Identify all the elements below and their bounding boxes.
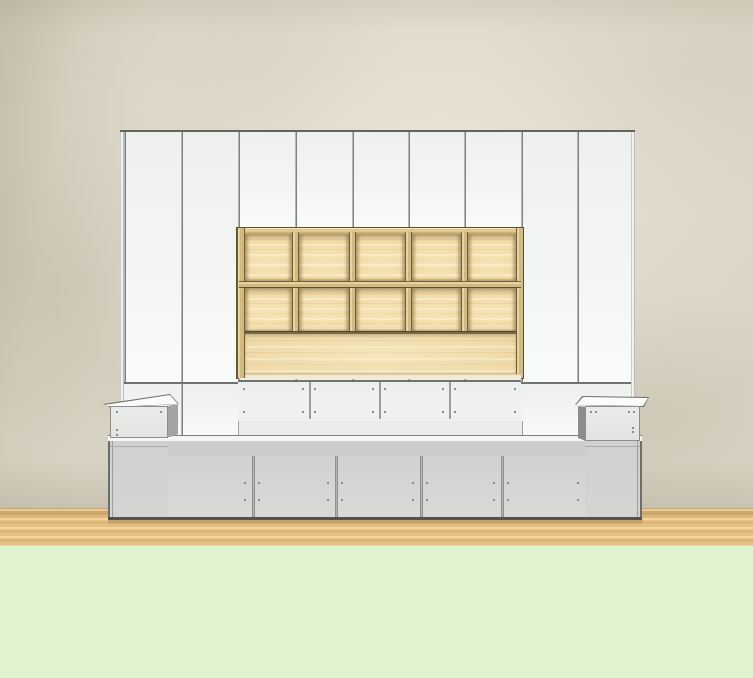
base-door[interactable] bbox=[335, 456, 420, 517]
furniture-render-scene bbox=[0, 0, 753, 678]
drawer-screw-dot bbox=[314, 411, 316, 413]
shelf-compartment[interactable] bbox=[468, 288, 516, 331]
door-handle-dot bbox=[507, 482, 509, 484]
door-handle-dot bbox=[327, 482, 329, 484]
door-handle-dot bbox=[341, 499, 343, 501]
shelf-bottom-strip bbox=[239, 374, 521, 379]
box-screw-dot bbox=[633, 411, 635, 413]
base-door[interactable] bbox=[168, 456, 252, 517]
left-box-right-side bbox=[168, 403, 178, 437]
base-door-seam bbox=[501, 456, 504, 517]
shelf-compartment[interactable] bbox=[356, 288, 405, 331]
box-screw-dot bbox=[595, 411, 597, 413]
base-door[interactable] bbox=[501, 456, 585, 517]
drawer-seam bbox=[309, 382, 311, 419]
door-handle-dot bbox=[412, 499, 414, 501]
wardrobe-upper-door[interactable] bbox=[238, 132, 295, 230]
drawer-screw-dot bbox=[243, 411, 245, 413]
drawer-screw-dot bbox=[514, 388, 516, 390]
door-handle-dot bbox=[493, 499, 495, 501]
box-screw-dot bbox=[628, 411, 630, 413]
drawer-screw-dot bbox=[442, 411, 444, 413]
shelf-compartment[interactable] bbox=[299, 234, 349, 281]
door-handle-dot bbox=[244, 482, 246, 484]
base-door[interactable] bbox=[420, 456, 501, 517]
drawer-front[interactable] bbox=[309, 382, 379, 419]
base-left-edge-line bbox=[112, 441, 113, 517]
base-right-edge-line bbox=[637, 441, 638, 517]
shelf-compartment[interactable] bbox=[245, 288, 292, 331]
door-handle-dot bbox=[327, 499, 329, 501]
door-handle-dot bbox=[341, 482, 343, 484]
box-screw-dot bbox=[116, 429, 118, 431]
left-box-front[interactable] bbox=[110, 406, 168, 438]
base-door-seam bbox=[335, 456, 338, 517]
wardrobe-left-edge bbox=[120, 132, 124, 437]
drawer-front[interactable] bbox=[379, 382, 449, 419]
door-handle-dot bbox=[493, 482, 495, 484]
drawer-screw-dot bbox=[384, 388, 386, 390]
shelf-divider-horizontal bbox=[239, 281, 521, 288]
base-top-rail bbox=[168, 441, 585, 457]
door-handle-dot bbox=[426, 499, 428, 501]
box-screw-dot bbox=[116, 434, 118, 436]
drawer-block[interactable] bbox=[238, 380, 521, 419]
wardrobe-right-edge bbox=[631, 132, 635, 437]
panel-seam bbox=[577, 132, 579, 382]
base-door-seam bbox=[252, 456, 255, 517]
green-floor-foreground bbox=[0, 546, 753, 678]
base-bench-unit[interactable] bbox=[108, 435, 642, 520]
panel-seam bbox=[181, 132, 183, 382]
panel-seam bbox=[124, 132, 126, 382]
shelf-bottom-panel[interactable] bbox=[245, 334, 516, 374]
wardrobe-tall-door[interactable] bbox=[577, 132, 631, 382]
base-right-column[interactable] bbox=[585, 441, 642, 517]
right-box-front[interactable] bbox=[585, 406, 640, 441]
shelf-compartment[interactable] bbox=[468, 234, 516, 281]
drawer-screw-dot bbox=[302, 411, 304, 413]
wardrobe-tall-door[interactable] bbox=[521, 132, 577, 382]
wardrobe-upper-door[interactable] bbox=[352, 132, 408, 230]
base-left-column[interactable] bbox=[108, 441, 168, 517]
drawer-screw-dot bbox=[454, 411, 456, 413]
door-handle-dot bbox=[258, 482, 260, 484]
right-side-box[interactable] bbox=[574, 393, 652, 441]
drawer-screw-dot bbox=[514, 411, 516, 413]
door-handle-dot bbox=[412, 482, 414, 484]
shelf-compartment[interactable] bbox=[412, 288, 461, 331]
drawer-screw-dot bbox=[454, 388, 456, 390]
shelf-top-rail bbox=[237, 228, 523, 234]
shelf-left-frame bbox=[237, 228, 245, 378]
base-right-outer-edge bbox=[640, 441, 642, 517]
shelf-compartment[interactable] bbox=[356, 234, 405, 281]
wardrobe-upper-door[interactable] bbox=[295, 132, 352, 230]
drawer-front[interactable] bbox=[449, 382, 521, 419]
box-screw-dot bbox=[590, 411, 592, 413]
base-door[interactable] bbox=[252, 456, 335, 517]
base-right-column-line bbox=[585, 446, 642, 447]
shelf-compartment[interactable] bbox=[299, 288, 349, 331]
drawer-screw-dot bbox=[372, 411, 374, 413]
drawer-front[interactable] bbox=[238, 382, 309, 419]
shelf-right-frame bbox=[516, 228, 523, 374]
left-side-box[interactable] bbox=[102, 393, 182, 439]
drawer-screw-dot bbox=[384, 411, 386, 413]
drawer-screw-dot bbox=[243, 388, 245, 390]
base-left-outer-edge bbox=[108, 441, 110, 517]
door-handle-dot bbox=[507, 499, 509, 501]
door-handle-dot bbox=[244, 499, 246, 501]
wardrobe-tall-door[interactable] bbox=[124, 132, 181, 382]
drawer-screw-dot bbox=[314, 388, 316, 390]
wardrobe-tall-door[interactable] bbox=[181, 132, 238, 382]
box-screw-dot bbox=[632, 427, 634, 429]
box-screw-dot bbox=[116, 411, 118, 413]
door-handle-dot bbox=[577, 482, 579, 484]
shelf-compartment[interactable] bbox=[412, 234, 461, 281]
wardrobe-upper-door[interactable] bbox=[464, 132, 521, 230]
door-handle-dot bbox=[577, 499, 579, 501]
box-screw-dot bbox=[632, 431, 634, 433]
shelf-compartment[interactable] bbox=[245, 234, 292, 281]
drawer-seam bbox=[449, 382, 451, 419]
base-left-column-line bbox=[108, 446, 168, 447]
drawer-screw-dot bbox=[442, 388, 444, 390]
drawer-screw-dot bbox=[302, 388, 304, 390]
box-screw-dot bbox=[160, 411, 162, 413]
drawer-screw-dot bbox=[372, 388, 374, 390]
wardrobe-upper-door[interactable] bbox=[408, 132, 464, 230]
base-door-seam bbox=[420, 456, 423, 517]
shelf-insert-unit[interactable] bbox=[237, 228, 523, 378]
drawer-seam bbox=[379, 382, 381, 419]
door-handle-dot bbox=[426, 482, 428, 484]
base-floor-shadow bbox=[108, 520, 642, 525]
door-handle-dot bbox=[258, 499, 260, 501]
